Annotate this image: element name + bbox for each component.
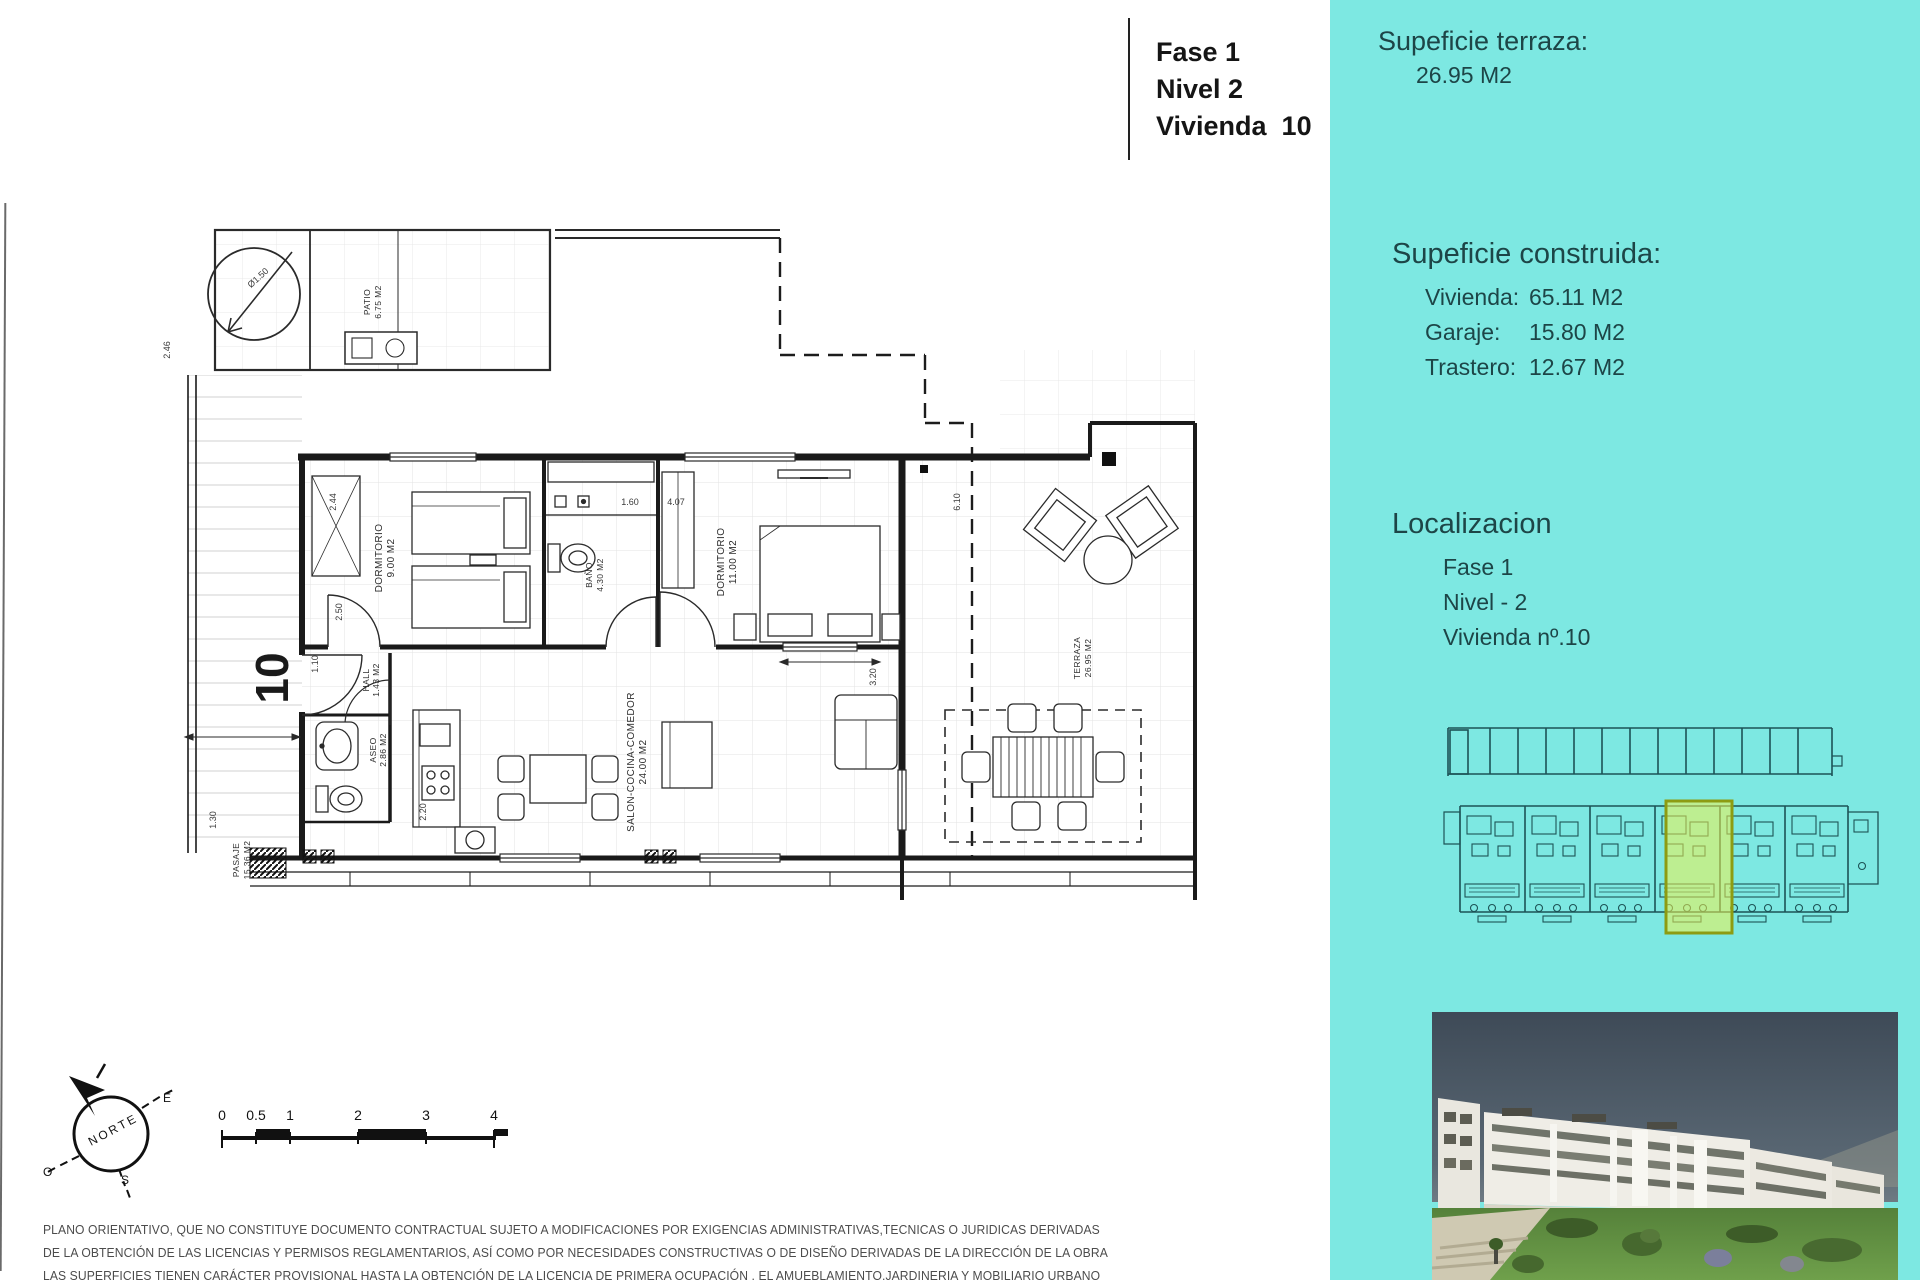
terraza-value: 26.95 M2 [1416,62,1512,89]
scale-tick-4: 4 [490,1107,498,1123]
compass-norte-label: NORTE [86,1111,141,1149]
svg-text:PATIO: PATIO [362,289,372,315]
dim-2-20: 2.20 [418,803,428,821]
svg-text:24.00 M2: 24.00 M2 [638,740,649,785]
dim-2-50: 2.50 [334,603,344,621]
svg-text:TERRAZA: TERRAZA [1072,637,1082,679]
floor-plan-drawing: PATIO 6.75 M2 DORMITORIO 9.00 M2 BAÑO 4.… [140,210,1200,910]
compass-south-label: S [121,1173,129,1187]
info-sidebar: Supeficie terraza: 26.95 M2 Supeficie co… [1330,0,1920,1280]
disclaimer-line-3: LAS SUPERFICIES TIENEN CARÁCTER PROVISIO… [43,1265,1110,1280]
dim-1-30: 1.30 [208,811,218,829]
loc-fase: Fase 1 [1443,550,1590,585]
room-label-terraza: TERRAZA 26.95 M2 [1072,637,1093,679]
room-label-bano: BAÑO 4.30 M2 [584,558,605,592]
row-label: Vivienda: [1425,280,1529,315]
loc-nivel: Nivel - 2 [1443,585,1590,620]
siteplan-thumbnail [1430,716,1900,948]
room-label-patio: PATIO 6.75 M2 [362,285,383,319]
compass-west-label: O [43,1165,52,1179]
svg-text:15.36 M2: 15.36 M2 [242,841,252,880]
roof-beam [555,230,780,238]
row-value: 15.80 M2 [1529,315,1625,350]
row-label: Garaje: [1425,315,1529,350]
scale-tick-0: 0 [218,1107,226,1123]
siteplan-highlight-unit-10 [1666,801,1732,933]
disclaimer-line-1: PLANO ORIENTATIVO, QUE NO CONSTITUYE DOC… [43,1219,1110,1242]
localizacion-heading: Localizacion [1392,508,1552,541]
compass-east-label: E [163,1091,171,1105]
page-edge-line [0,203,6,1271]
disclaimer-line-2: DE LA OBTENCIÓN DE LAS LICENCIAS Y PERMI… [43,1242,1110,1265]
localizacion-lines: Fase 1 Nivel - 2 Vivienda nº.10 [1443,550,1590,655]
disclaimer-text: PLANO ORIENTATIVO, QUE NO CONSTITUYE DOC… [43,1219,1143,1280]
construida-row-trastero: Trastero: 12.67 M2 [1425,350,1625,385]
dim-2-46: 2.46 [162,341,172,359]
title-vivienda: Vivienda 10 [1156,108,1312,145]
svg-text:DORMITORIO: DORMITORIO [374,524,385,593]
dim-6-10: 6.10 [952,493,962,511]
svg-text:11.00 M2: 11.00 M2 [728,540,739,584]
svg-text:ASEO: ASEO [368,737,378,762]
scale-tick-1: 1 [286,1107,294,1123]
scale-bar: 0 0.5 1 2 3 4 [200,1100,510,1160]
svg-text:4.30 M2: 4.30 M2 [595,558,605,592]
row-label: Trastero: [1425,350,1529,385]
title-nivel: Nivel 2 [1156,71,1312,108]
construida-rows: Vivienda: 65.11 M2 Garaje: 15.80 M2 Tras… [1425,280,1625,385]
dim-1-60: 1.60 [621,497,639,507]
dim-1-10: 1.10 [310,655,320,673]
svg-text:6.75 M2: 6.75 M2 [373,285,383,319]
construida-heading: Supeficie construida: [1392,238,1661,271]
north-arrow-icon [69,1076,105,1116]
svg-text:HALL: HALL [361,669,371,692]
dim-4-07: 4.07 [667,497,685,507]
room-label-pasaje: PASAJE 15.36 M2 [231,841,252,880]
title-fase: Fase 1 [1156,34,1312,71]
terraza-heading: Supeficie terraza: [1378,26,1588,57]
plan-sheet-page: Fase 1 Nivel 2 Vivienda 10 Supeficie ter… [0,0,1920,1280]
scale-tick-2: 2 [354,1107,362,1123]
row-value: 65.11 M2 [1529,280,1623,315]
svg-text:1.43 M2: 1.43 M2 [371,663,381,697]
svg-text:26.95 M2: 26.95 M2 [1083,639,1093,678]
svg-text:2.86 M2: 2.86 M2 [378,733,388,767]
dim-2-44: 2.44 [328,493,338,511]
building-photo [1432,1012,1898,1280]
dim-3-20: 3.20 [868,668,878,686]
loc-vivienda: Vivienda nº.10 [1443,620,1590,655]
svg-text:SALON-COCINA-COMEDOR: SALON-COCINA-COMEDOR [626,692,637,832]
scale-tick-3: 3 [422,1107,430,1123]
svg-text:BAÑO: BAÑO [584,562,594,588]
svg-text:9.00 M2: 9.00 M2 [386,538,397,577]
construida-row-garaje: Garaje: 15.80 M2 [1425,315,1625,350]
room-label-aseo: ASEO 2.86 M2 [368,733,388,767]
construida-row-vivienda: Vivienda: 65.11 M2 [1425,280,1625,315]
row-value: 12.67 M2 [1529,350,1625,385]
unit-number: 10 [246,652,298,703]
svg-text:DORMITORIO: DORMITORIO [716,528,727,597]
svg-text:PASAJE: PASAJE [231,843,241,877]
title-block: Fase 1 Nivel 2 Vivienda 10 [1128,18,1312,160]
scale-tick-05: 0.5 [246,1107,266,1123]
north-compass: NORTE E O S [35,1052,185,1202]
